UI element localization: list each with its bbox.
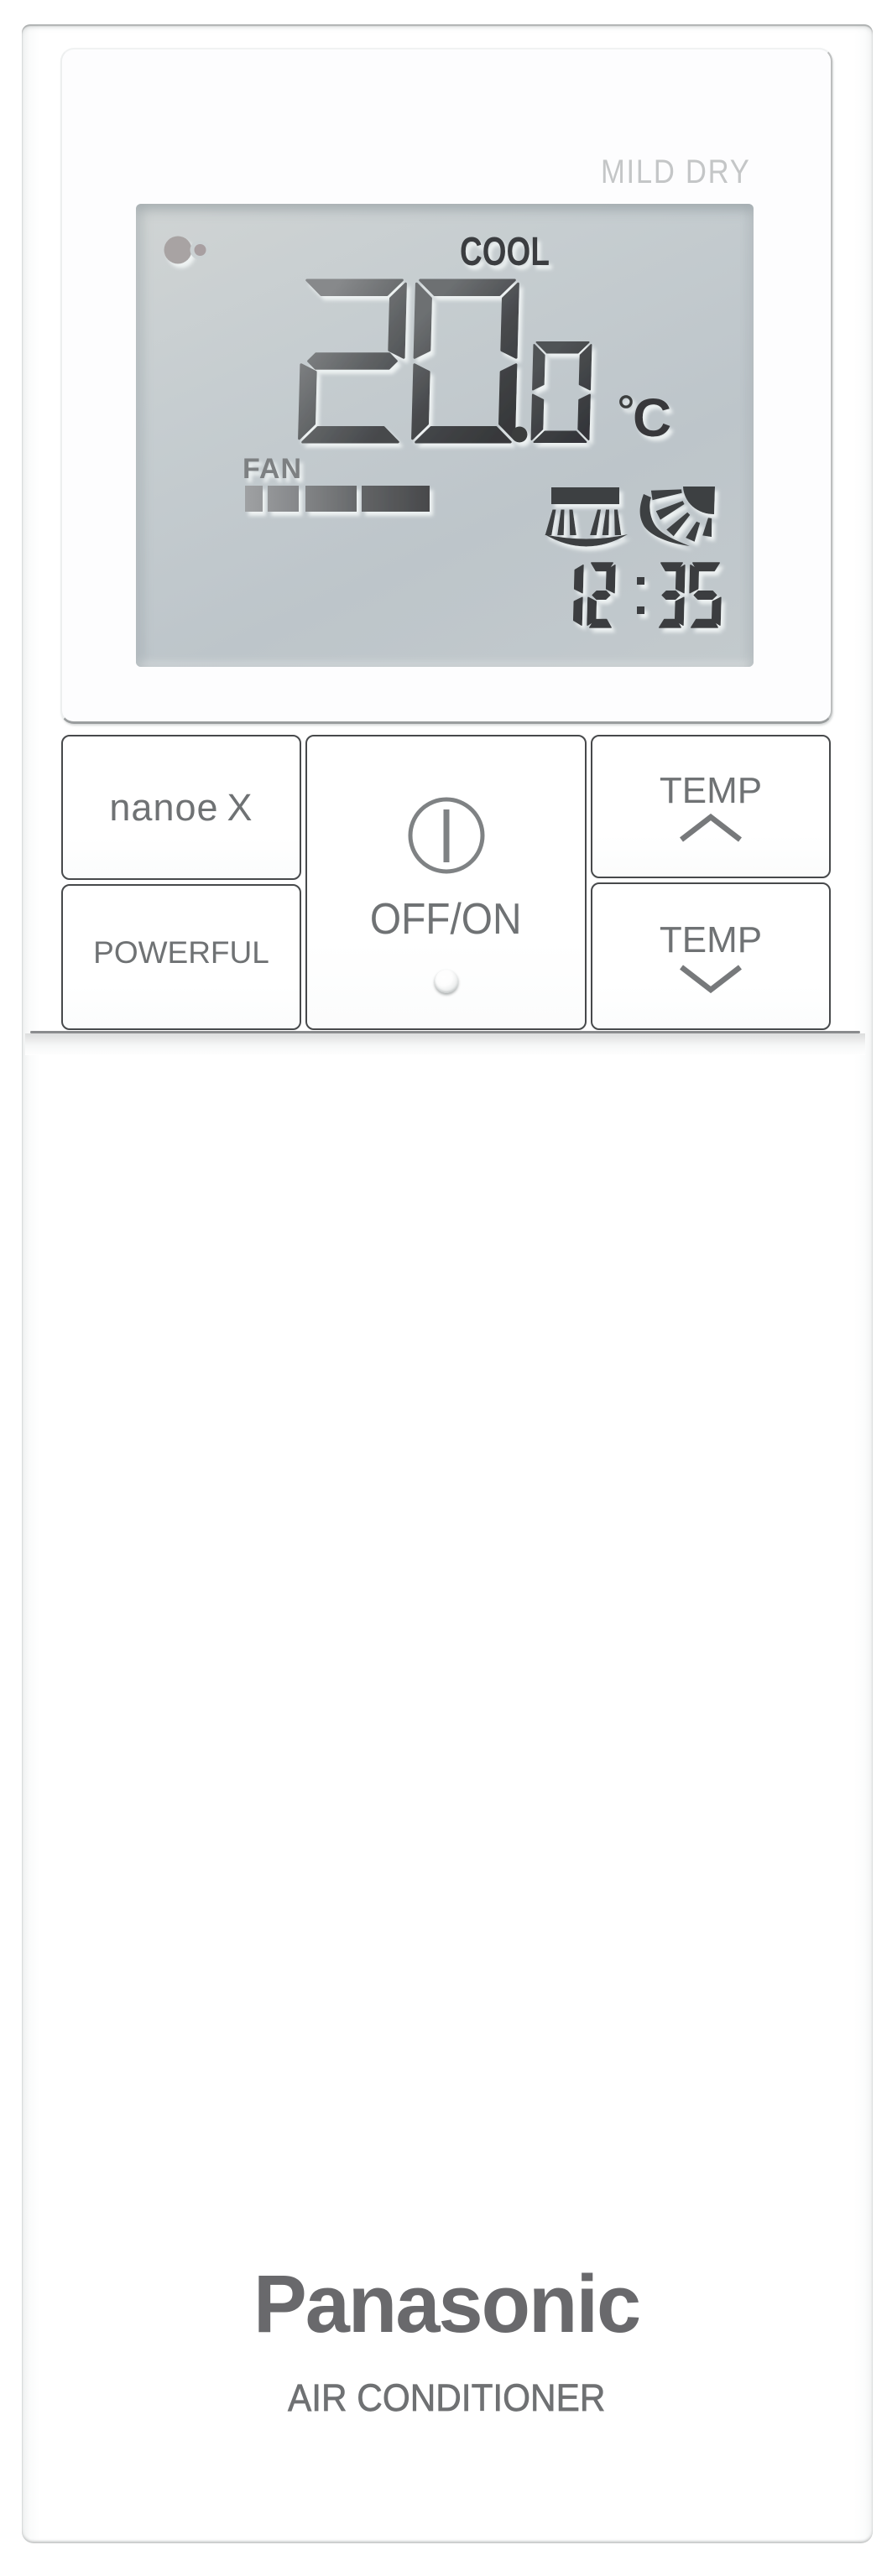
svg-text:COOL: COOL (460, 230, 550, 274)
svg-text:C: C (633, 388, 671, 448)
svg-text:FAN: FAN (243, 453, 302, 485)
